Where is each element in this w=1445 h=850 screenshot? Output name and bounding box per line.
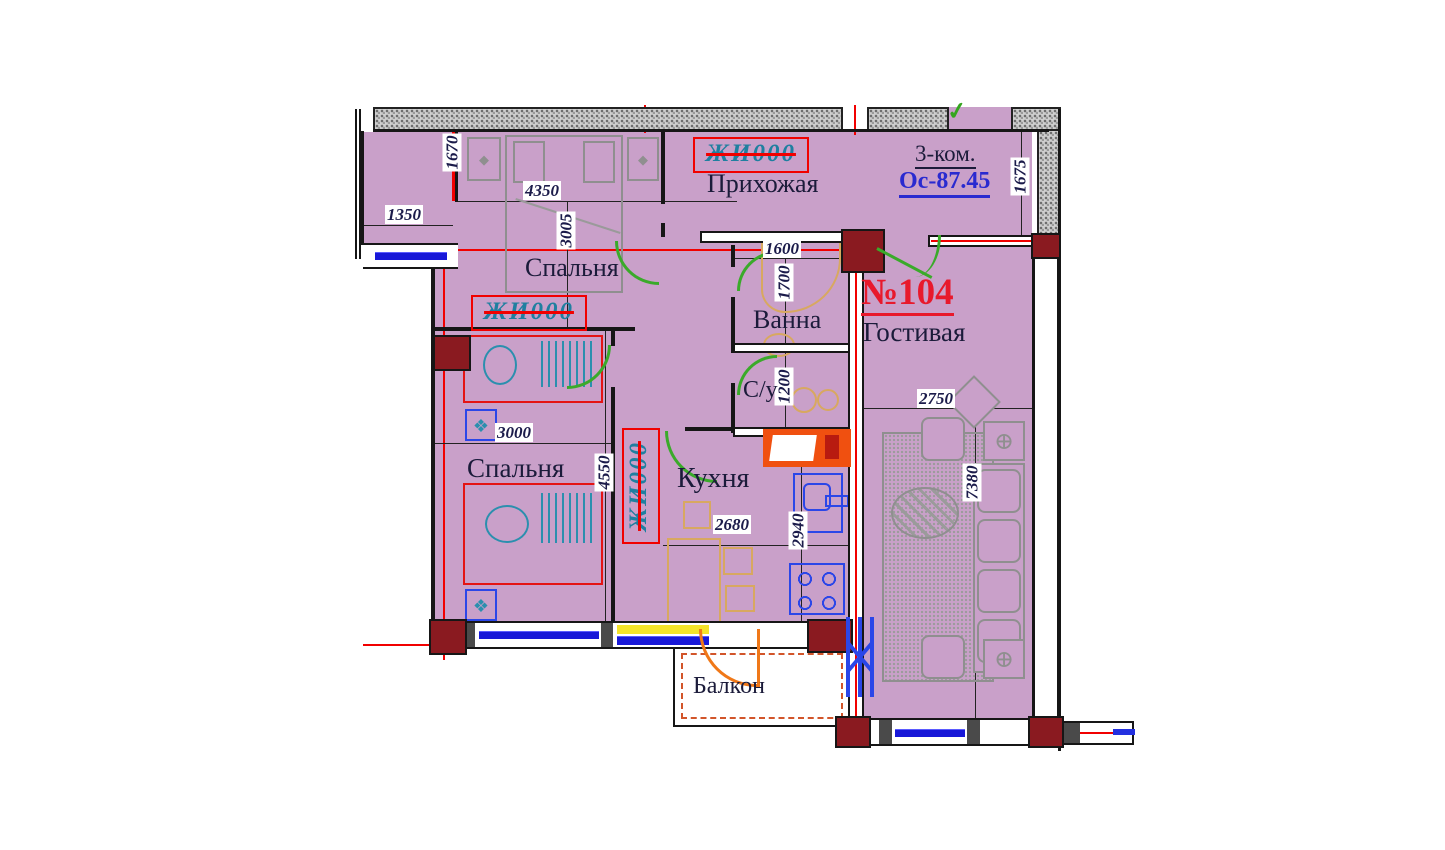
axis-line — [931, 240, 1031, 242]
dim-4350: 4350 — [523, 181, 561, 200]
bed-pillow — [513, 141, 545, 183]
floor-plan: ✓ 1670 4350 1350 3005 1600 1700 1675 120… — [355, 95, 1155, 785]
label-bedroom1: Спальня — [525, 253, 619, 283]
dim-line — [852, 408, 1032, 409]
chair — [725, 585, 755, 612]
window-bedroom2 — [479, 631, 599, 639]
dim-line — [435, 443, 613, 444]
nightstand: ◆ — [467, 137, 501, 181]
wall-double — [733, 343, 851, 353]
wall — [661, 223, 665, 237]
balcony-door-window — [617, 636, 709, 645]
exterior-wall-hatched — [373, 107, 843, 131]
axis-line — [443, 245, 445, 660]
bed-decor — [485, 505, 529, 543]
window-left — [375, 252, 447, 260]
wall-right-strip — [1032, 245, 1060, 722]
dining-table — [667, 538, 721, 626]
dim-1675: 1675 — [1011, 158, 1030, 196]
stamp-hallway: ЖИ000 — [693, 137, 809, 173]
dim-3005: 3005 — [557, 212, 576, 250]
sofa-cushion — [977, 569, 1021, 613]
dim-1700: 1700 — [775, 264, 794, 302]
side-table-lamp: ⊕ — [983, 639, 1025, 679]
stamp-kitchen: ЖИ000 — [622, 428, 660, 544]
label-hallway: Прихожая — [707, 169, 819, 199]
column-block — [433, 335, 471, 371]
apartment-number: №104 — [861, 273, 954, 316]
label-wc: С/у — [743, 377, 778, 404]
label-bath: Ванна — [753, 305, 821, 335]
toilet — [791, 387, 817, 413]
wall — [611, 387, 615, 627]
wall — [731, 245, 735, 267]
balcony-door-sill — [617, 625, 709, 634]
dim-4550: 4550 — [595, 454, 614, 492]
wall — [731, 383, 735, 433]
dim-3000: 3000 — [495, 423, 533, 442]
dim-2680: 2680 — [713, 515, 751, 534]
dim-7380: 7380 — [963, 464, 982, 502]
revision-checkmark: ✓ — [945, 96, 969, 128]
chair — [683, 501, 711, 529]
nightstand: ◆ — [627, 137, 659, 181]
window-jamb — [879, 720, 892, 744]
dim-1670: 1670 — [443, 134, 462, 172]
armchair — [921, 635, 965, 679]
side-table-lamp: ⊕ — [983, 421, 1025, 461]
bed-pillow — [583, 141, 615, 183]
window-jamb — [601, 623, 613, 647]
kitchen-faucet — [825, 495, 849, 507]
window-living — [895, 729, 965, 737]
armchair — [921, 417, 965, 461]
bed-decor — [483, 345, 517, 385]
sofa-cushion — [977, 469, 1021, 513]
nightstand-flower: ❖ — [465, 409, 497, 441]
column-block — [1031, 233, 1061, 259]
exterior-wall-hatched — [867, 107, 949, 131]
wall — [373, 129, 1049, 132]
stove — [789, 563, 845, 615]
wall — [361, 131, 364, 245]
dim-1350: 1350 — [385, 205, 423, 224]
bed-decor-hatch — [541, 493, 593, 543]
label-living: Гостивая — [863, 317, 965, 348]
floor-plan-canvas: { "apartment": { "number": "№104", "room… — [0, 0, 1445, 850]
dim-2940: 2940 — [789, 512, 808, 550]
wall-stub-block — [1064, 723, 1080, 743]
sofa-cushion — [977, 519, 1021, 563]
wall — [355, 109, 357, 259]
label-kitchen: Кухня — [677, 463, 749, 495]
apartment-type: 3-ком. — [915, 141, 976, 169]
chair — [723, 547, 753, 575]
label-bedroom2: Спальня — [467, 453, 564, 484]
boiler-flame — [825, 435, 839, 459]
window-jamb — [967, 720, 980, 744]
column-block — [1028, 716, 1064, 748]
wall — [611, 330, 615, 346]
stamp-bedroom1: ЖИ000 — [471, 295, 587, 331]
column-block — [835, 716, 871, 748]
apartment-area: Ос-87.45 — [899, 167, 990, 198]
toilet-tank — [817, 389, 839, 411]
radiator — [843, 615, 877, 699]
exterior-wall-hatched — [1011, 107, 1061, 131]
coffee-table — [891, 487, 959, 539]
column-block — [429, 619, 467, 655]
wall — [359, 109, 361, 259]
dim-2750: 2750 — [917, 389, 955, 408]
dim-1600: 1600 — [763, 239, 801, 258]
wall — [431, 243, 435, 627]
window-stub — [1113, 729, 1135, 735]
nightstand-flower: ❖ — [465, 589, 497, 621]
boiler-panel — [769, 435, 817, 461]
label-balcony: Балкон — [693, 673, 765, 700]
wall — [661, 132, 665, 204]
dim-line — [363, 225, 453, 226]
